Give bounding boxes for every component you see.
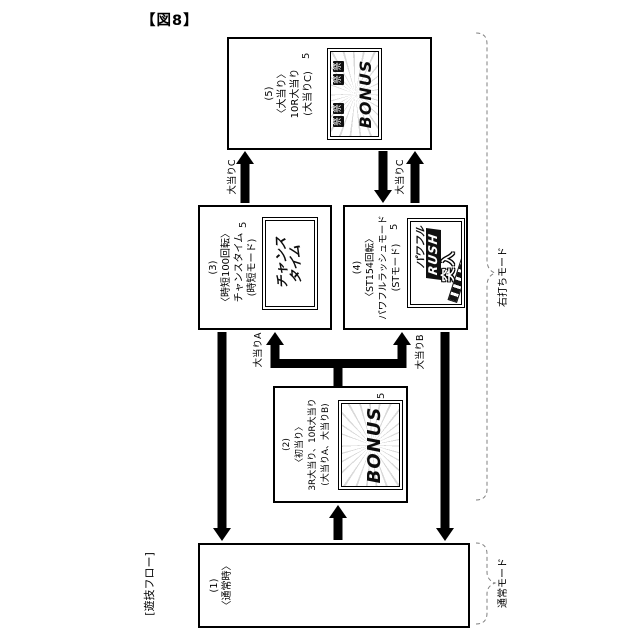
box-firsthit-line-4: (大当りA、大当りB) — [320, 388, 333, 501]
state-box-normal: (1) 〈通常時〉 — [198, 543, 470, 628]
transition-label-jackpot-b: 大当りB — [412, 322, 426, 382]
ref-number-jackpot-screen: 5 — [301, 53, 312, 59]
arrow-jackpot-to-rush — [374, 151, 392, 203]
screen-thumbnail-first-hit: BONUS — [338, 400, 403, 490]
screen-thumbnail-chance-time: チャンス タイム — [262, 217, 318, 310]
box-rush-line-2: 〈ST154回転〉 — [364, 207, 377, 328]
arrow-chancetime-to-normal — [213, 332, 231, 541]
box-jackpot-line-2: 〈大当り〉 — [276, 39, 289, 148]
transition-label-jackpot-a: 大当りA — [250, 320, 264, 380]
festival-glyph: 祭 — [333, 116, 344, 127]
box-firsthit-line-2: 〈初当り〉 — [294, 388, 307, 501]
patent-figure-canvas: 【図8】 (1) 〈通常時〉 — [0, 0, 640, 640]
ref-number-firsthit-screen: 5 — [376, 393, 387, 399]
state-box-powerful-rush: (4) 〈ST154回転〉 パワフルラッシュモード (STモード) パワフル R… — [343, 205, 468, 330]
transition-label-jackpot-c-left: 大当りC — [224, 147, 238, 207]
box-normal-line-1: (1) — [208, 545, 221, 626]
screen-thumbnail-jackpot: 祭 祭 祭 祭 BONUS — [327, 48, 382, 140]
state-box-jackpot: (5) 〈大当り〉 10R大当り (大当りC) 祭 祭 祭 祭 BONUS — [227, 37, 432, 150]
normal-mode-label: 通常モード — [494, 543, 509, 623]
box-jackpot-line-1: (5) — [263, 39, 276, 148]
ref-number-chancetime-screen: 5 — [238, 222, 249, 228]
box-firsthit-line-1: (2) — [281, 388, 294, 501]
state-box-chance-time: (3) 〈時短100回転〉 チャンスタイム (時短モード) チャンス タイム — [198, 205, 332, 330]
arrow-rush-to-jackpot — [406, 151, 424, 203]
brace-normal-mode — [476, 543, 495, 624]
bonus-screen-text: BONUS — [356, 52, 375, 136]
box-chancetime-line-2: 〈時短100回転〉 — [220, 207, 233, 328]
box-firsthit-line-3: 3R大当り、10R大当り — [307, 388, 320, 501]
festival-glyph: 祭 — [333, 74, 344, 85]
arrow-rush-to-normal — [436, 332, 454, 541]
rotated-flow-diagram: (1) 〈通常時〉 (2) 〈初当り〉 3R大当り、10R大当り (大当りA、大… — [0, 0, 640, 640]
ref-number-rush-screen: 5 — [389, 224, 400, 230]
state-box-first-hit: (2) 〈初当り〉 3R大当り、10R大当り (大当りA、大当りB) BONUS — [273, 386, 408, 503]
arrow-normal-to-firsthit — [329, 505, 347, 540]
bonus-screen-text: BONUS — [364, 404, 385, 486]
box-rush-line-1: (4) — [351, 207, 364, 328]
screen-thumbnail-powerful-rush: パワフル RUSH 突入 — [407, 218, 465, 308]
arrow-chancetime-to-jackpot — [236, 151, 254, 203]
box-chancetime-line-1: (3) — [207, 207, 220, 328]
game-flow-label: [遊技フロー] — [141, 536, 157, 632]
box-normal-line-2: 〈通常時〉 — [221, 545, 234, 626]
right-hit-mode-label: 右打ちモード — [494, 237, 509, 317]
transition-label-jackpot-c-right: 大当りC — [392, 147, 406, 207]
brace-right-hit-mode — [476, 33, 495, 500]
festival-glyph: 祭 — [333, 61, 344, 72]
festival-glyph: 祭 — [333, 103, 344, 114]
arrow-firsthit-split-bar — [271, 359, 407, 368]
chance-time-screen-line2: タイム — [289, 244, 305, 284]
